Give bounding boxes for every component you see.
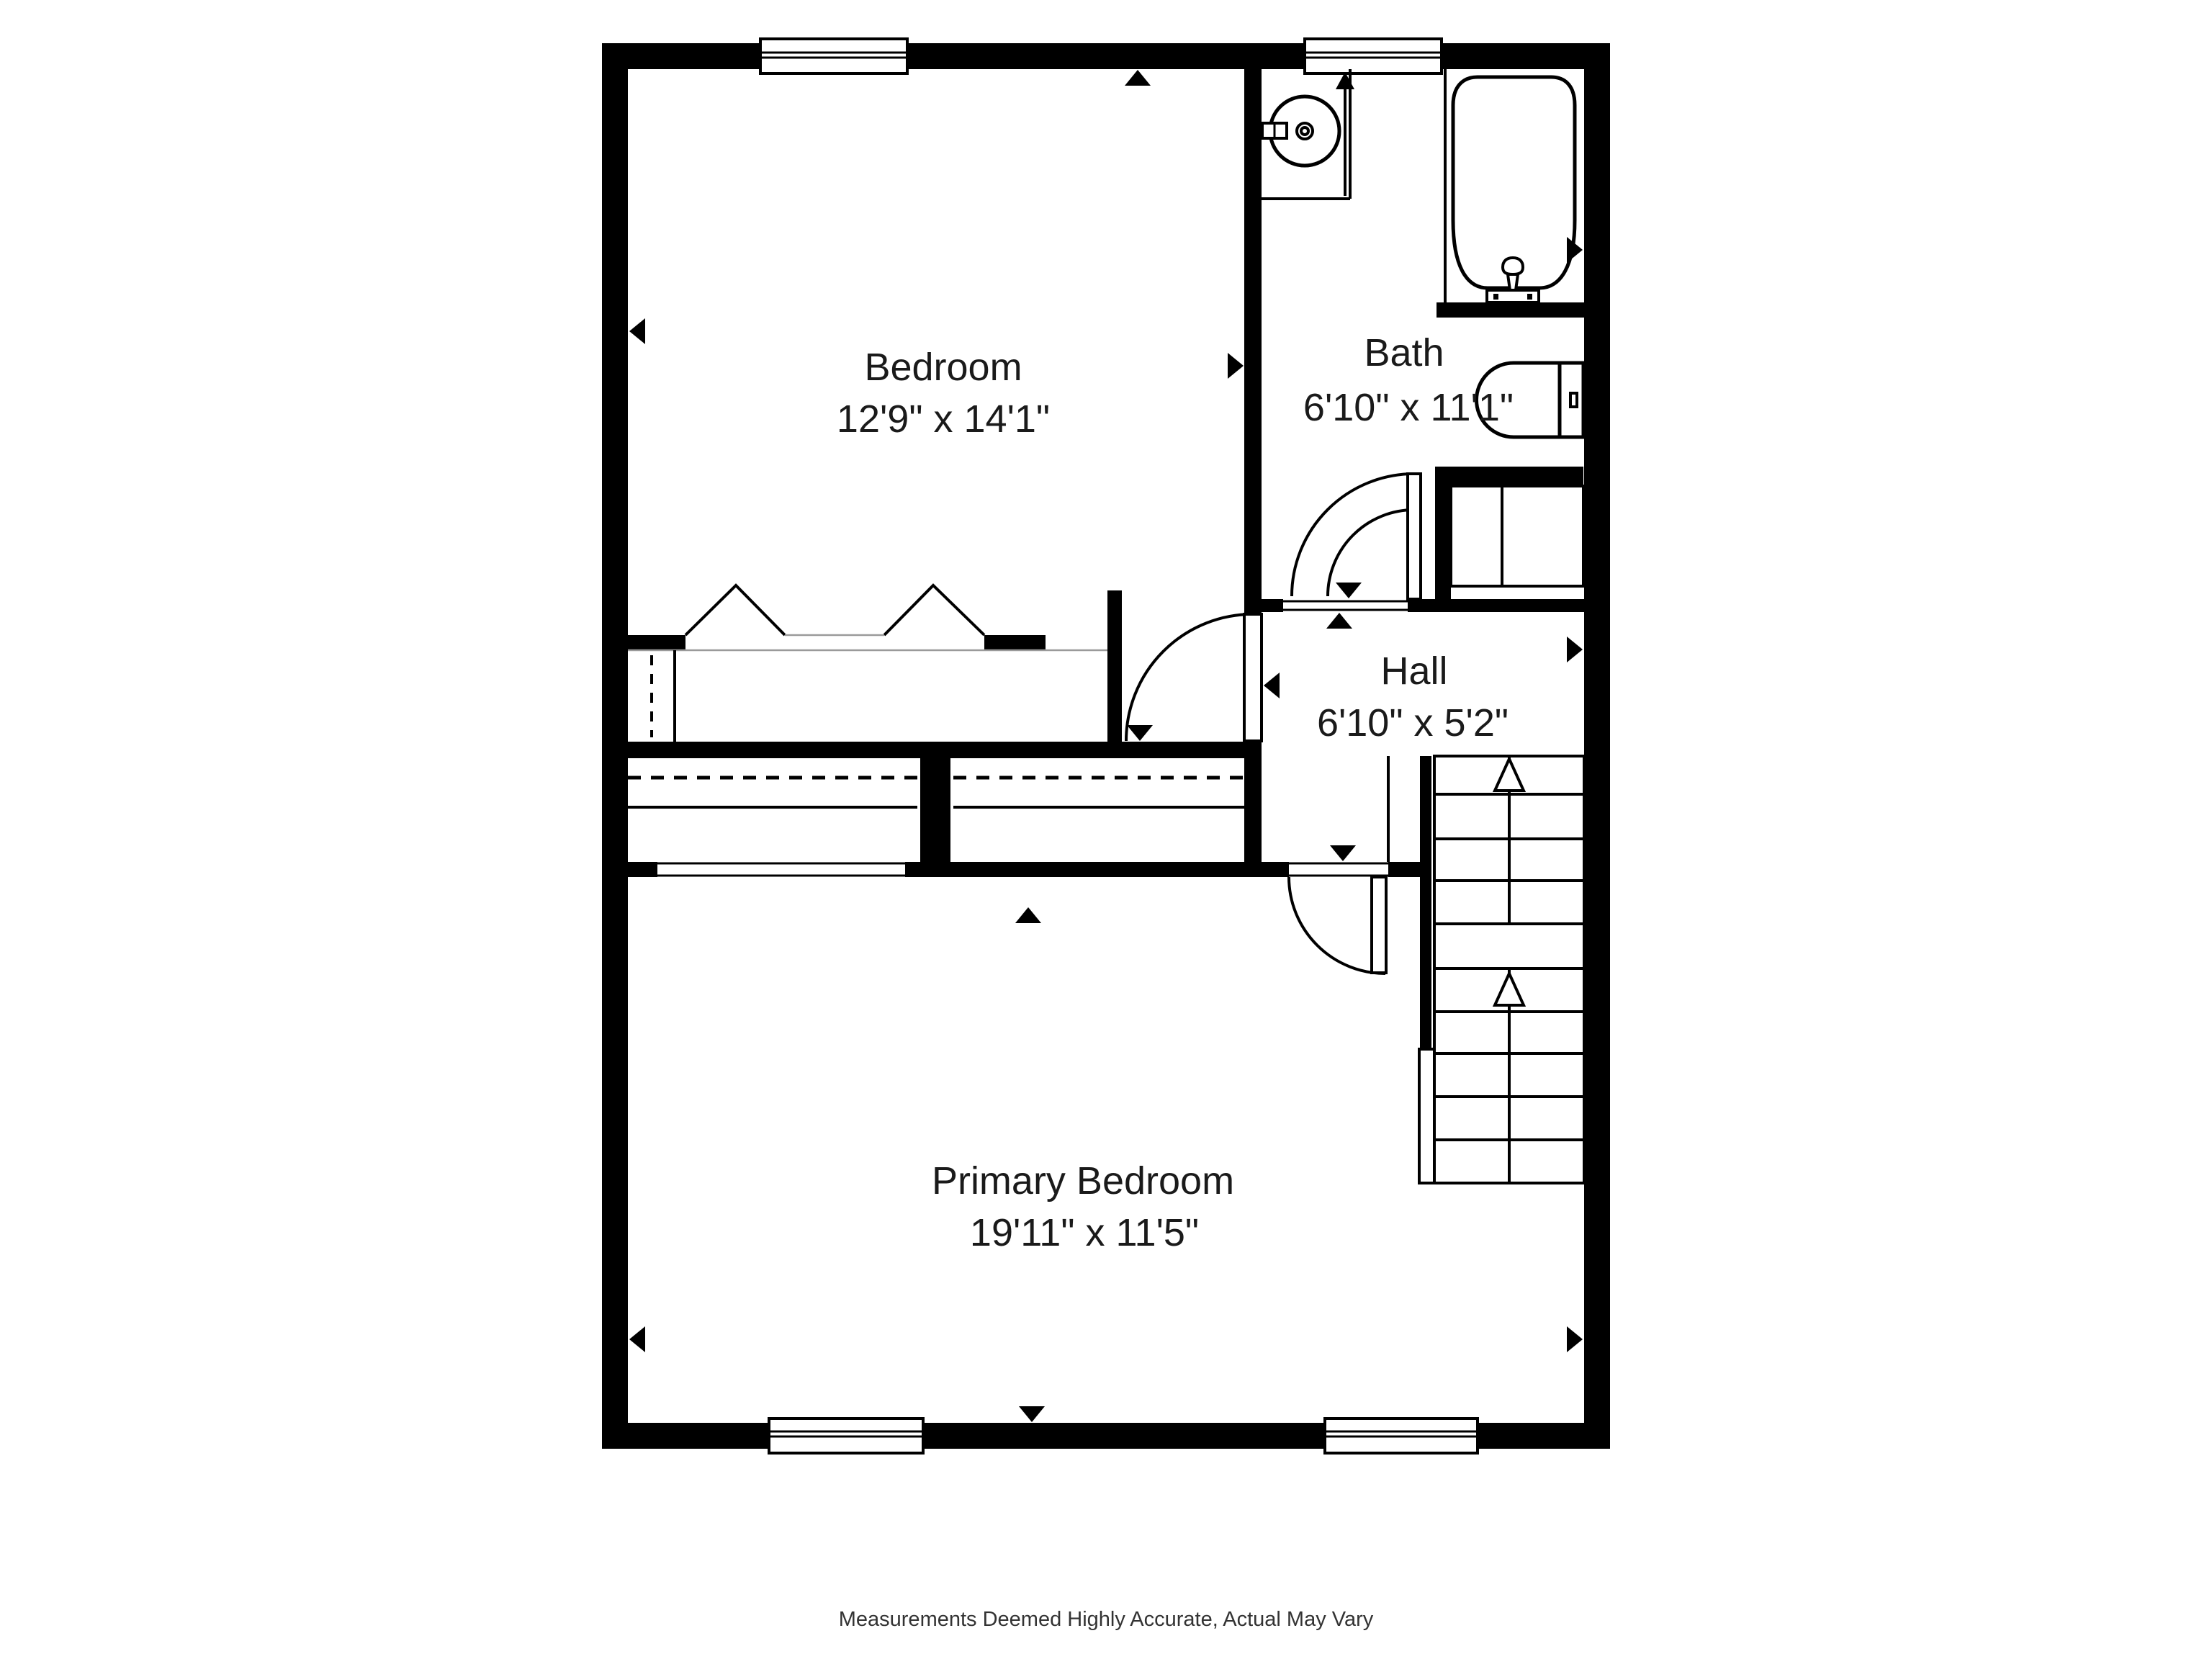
floor-plan: Bedroom 12'9" x 14'1" Bath 6'10" x 11'1"… [0, 0, 2212, 1659]
door-swing-icon [1126, 614, 1262, 741]
wall-bath-bottom-right [1408, 599, 1584, 612]
tub-faucet-neck [1508, 274, 1518, 290]
bathroom-fixtures [1262, 69, 1583, 437]
bathtub-icon [1453, 77, 1575, 302]
interior-walls [628, 69, 1584, 1049]
window-icon [1305, 39, 1442, 73]
wall-marker-icon [1567, 637, 1583, 662]
disclaimer-text: Measurements Deemed Highly Accurate, Act… [839, 1608, 1374, 1631]
wall-hall-stub-right [1388, 862, 1420, 877]
wall-bedroom-bath [1244, 69, 1262, 614]
window-icon [760, 39, 907, 73]
wall-marker-icon [1019, 1406, 1045, 1422]
room-name-bedroom: Bedroom [864, 346, 1022, 389]
wall-linen-top [1435, 467, 1583, 486]
wall-left [602, 43, 628, 1449]
wall-top [602, 43, 1610, 69]
sink-icon [1262, 96, 1339, 166]
bedroom-closet [628, 585, 1122, 742]
room-dims-hall: 6'10" x 5'2" [1317, 701, 1509, 745]
room-dims-primary-bedroom: 19'11" x 11'5" [970, 1211, 1199, 1254]
wall-bath-bottom-left [1244, 599, 1283, 612]
wall-bedroom-bottom [628, 742, 1262, 758]
wall-marker-icon [1015, 907, 1041, 923]
room-name-bath: Bath [1364, 331, 1444, 374]
stair-railing [1419, 1049, 1434, 1183]
wall-stairs-left [1420, 756, 1431, 1049]
room-dims-bedroom: 12'9" x 14'1" [837, 397, 1050, 441]
wall-tub-nook [1437, 302, 1584, 318]
wall-marker-icon [1330, 845, 1356, 861]
closet-jamb-right [1107, 590, 1122, 742]
wall-marker-icon [1228, 353, 1244, 379]
wall-marker-icon [1336, 583, 1362, 598]
wall-marker-icon [1264, 673, 1280, 698]
floor-plan-page: Bedroom 12'9" x 14'1" Bath 6'10" x 11'1"… [0, 0, 2212, 1659]
stairs [1388, 756, 1584, 1183]
wall-closetrow-stub-left [628, 862, 657, 877]
closet-stub-right [984, 635, 1046, 650]
window-icon [769, 1419, 923, 1453]
wall-closetrow-mid [905, 862, 1289, 877]
room-name-primary-bedroom: Primary Bedroom [932, 1159, 1234, 1202]
room-dims-bath: 6'10" x 11'1" [1303, 386, 1514, 429]
wall-marker-icon [629, 1326, 645, 1352]
room-name-hall: Hall [1380, 649, 1447, 693]
wall-marker-icon [1567, 1326, 1583, 1352]
tub-faucet-head [1503, 258, 1523, 274]
wall-marker-icon [1326, 613, 1352, 629]
stairs-up-arrow-icon [1495, 974, 1524, 1183]
wall-right [1584, 43, 1610, 1449]
door-swing-icon [1289, 863, 1388, 974]
wall-marker-icon [1125, 70, 1151, 86]
wall-marker-icon [629, 318, 645, 344]
window-icon [1325, 1419, 1478, 1453]
closet-stub-left [628, 635, 685, 650]
stairs-up-arrow-icon [1495, 759, 1524, 924]
linen-closet [1451, 486, 1583, 586]
wall-linen-left [1435, 467, 1451, 599]
wall-marker-icon [1127, 725, 1153, 741]
bifold-door-icon [884, 585, 984, 635]
wall-bedroom-hall-lower [1244, 741, 1262, 877]
wall-closetrow-divider [920, 758, 950, 862]
bifold-door-icon [685, 585, 785, 635]
linen-closet-outline [1451, 486, 1583, 586]
